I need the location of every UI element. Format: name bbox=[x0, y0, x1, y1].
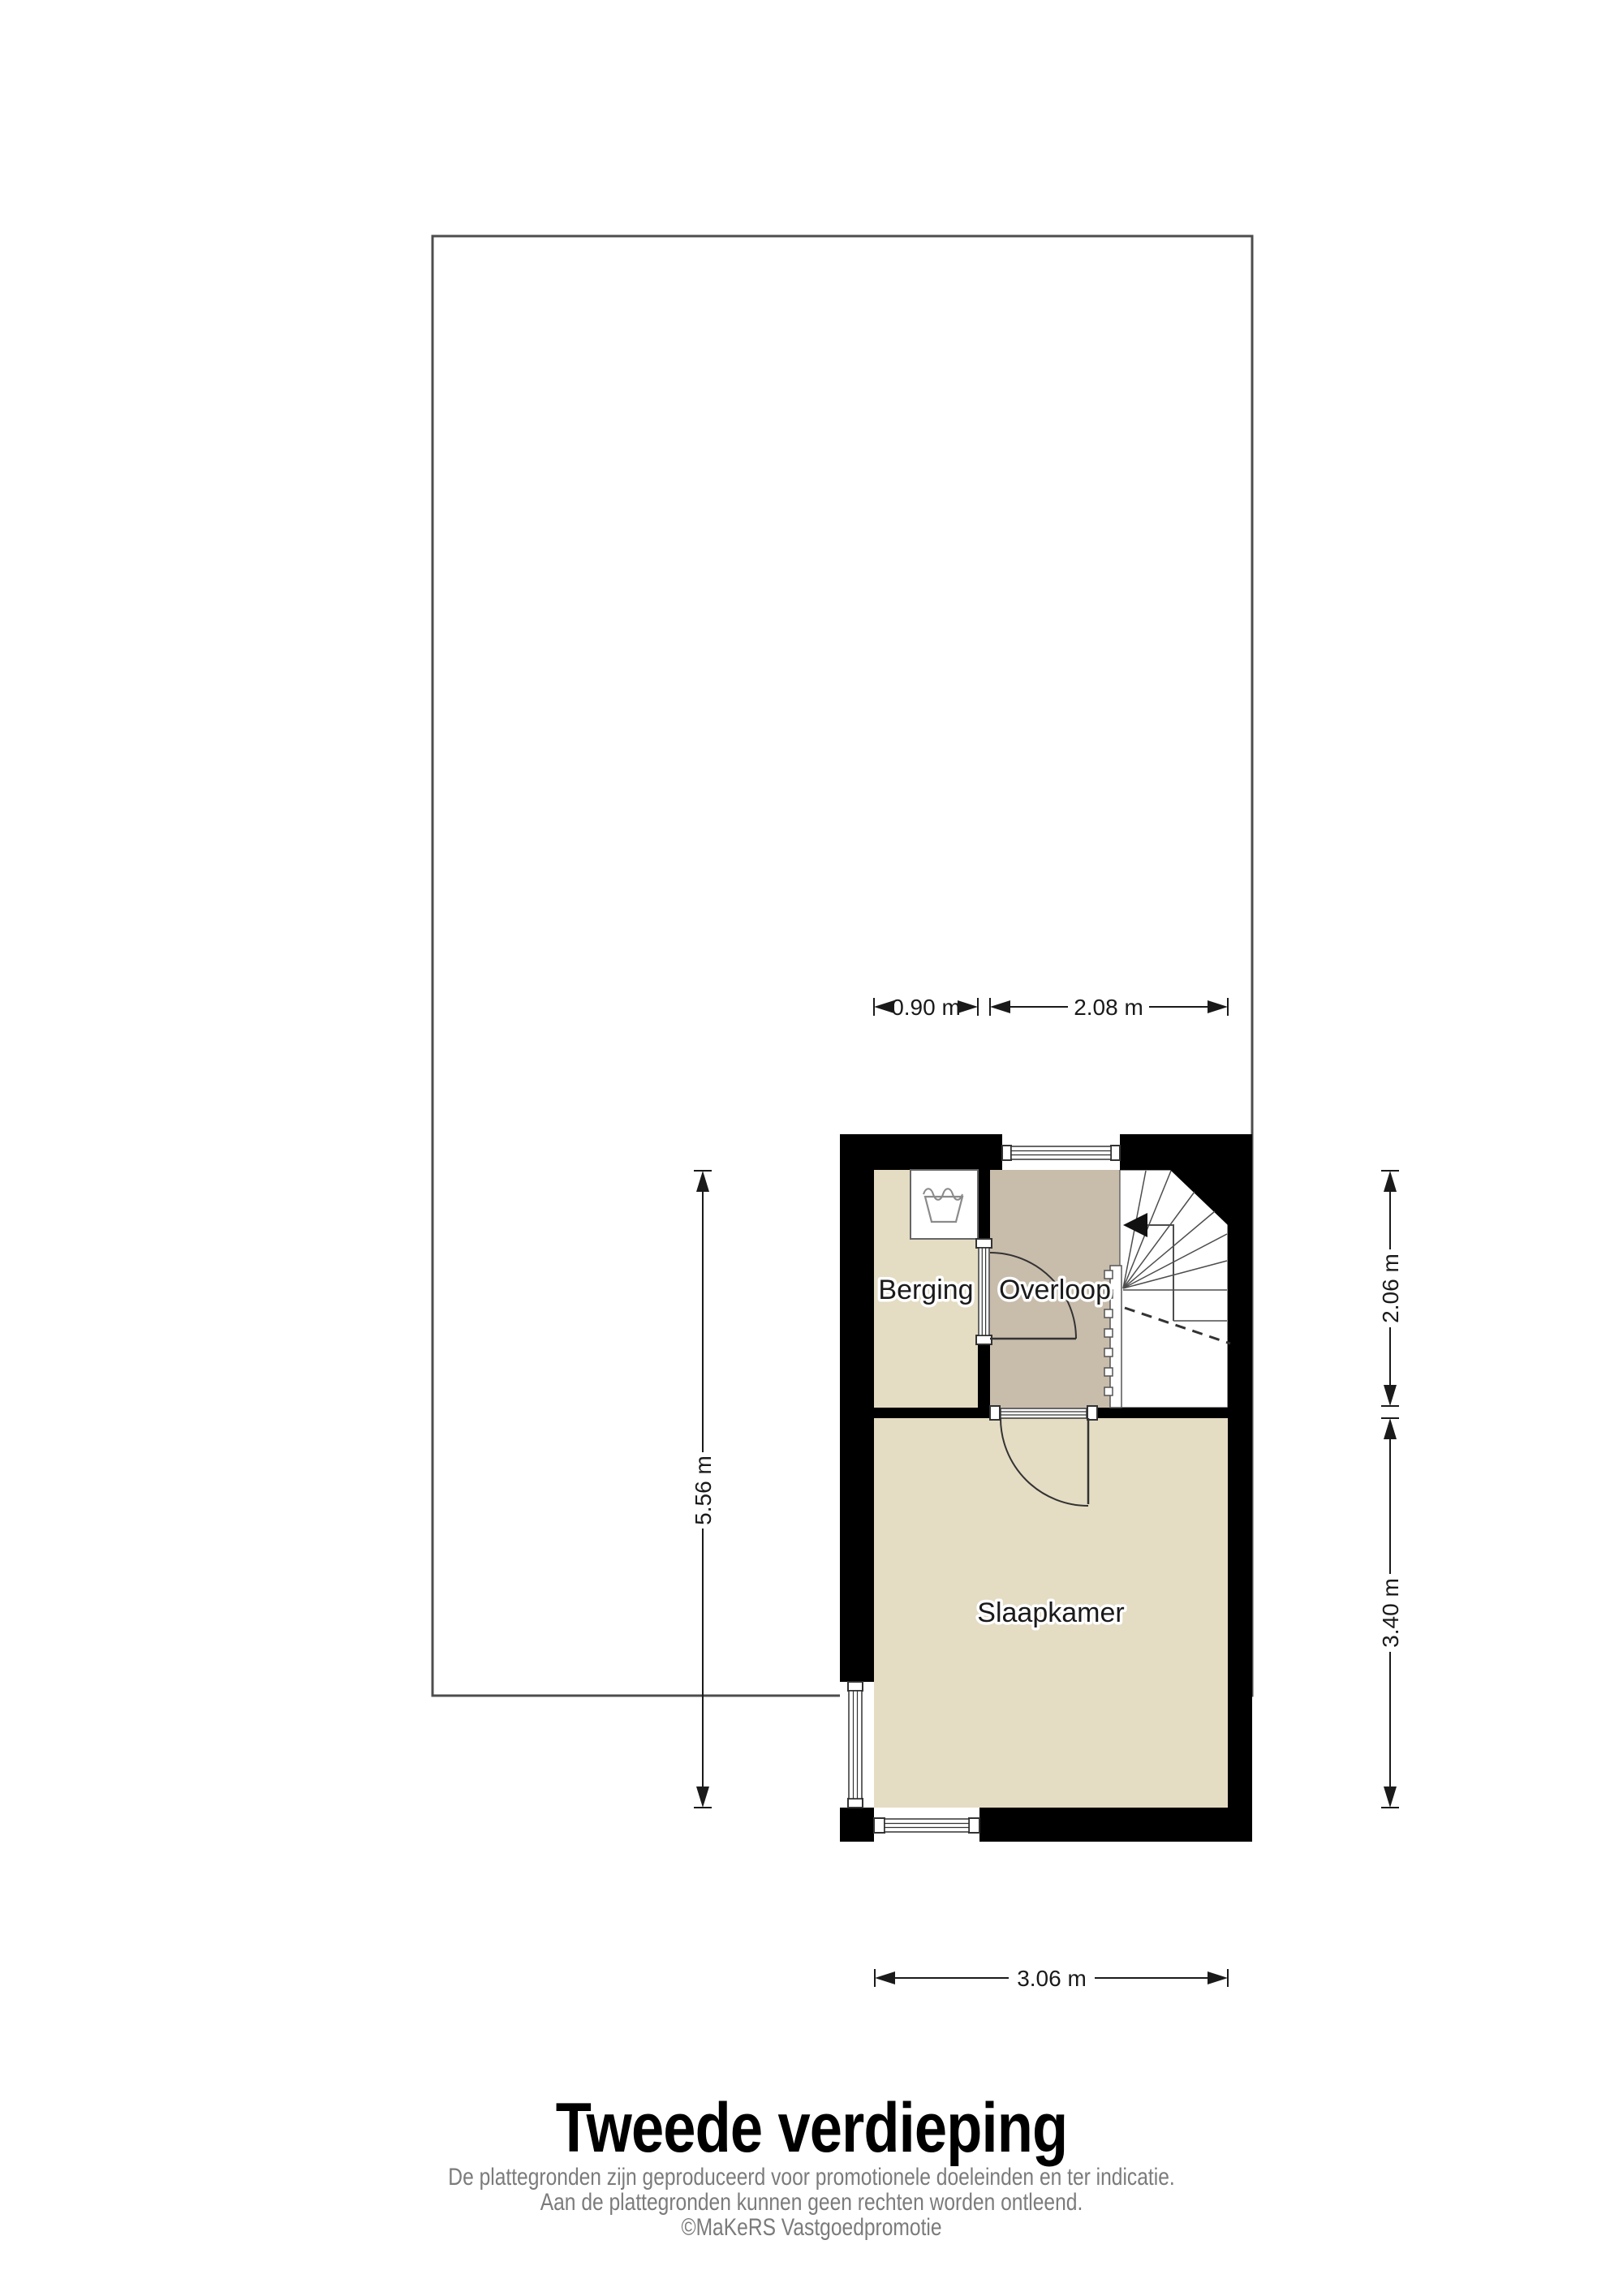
footer-line-2: Aan de plattegronden kunnen geen rechten… bbox=[540, 2188, 1083, 2216]
window-top bbox=[1002, 1134, 1120, 1170]
wall-middle-right bbox=[1097, 1408, 1252, 1418]
room-label-overloop: Overloop bbox=[999, 1275, 1111, 1305]
room-label-slaapkamer: Slaapkamer bbox=[977, 1597, 1124, 1628]
dimension-label: 0.90 m bbox=[891, 995, 961, 1020]
wall-right bbox=[1228, 1134, 1252, 1842]
footer-line-3: ©MaKeRS Vastgoedpromotie bbox=[681, 2213, 941, 2241]
wall-bottom bbox=[979, 1808, 1252, 1842]
wall-divider-upper bbox=[978, 1170, 990, 1239]
floor-plan: Berging Overloop Slaapkamer bbox=[840, 1134, 1252, 1842]
wall-left bbox=[840, 1134, 874, 1682]
dimension-label: 2.08 m bbox=[1074, 995, 1143, 1020]
window-bottom bbox=[874, 1808, 979, 1842]
dimension-slaapkamer-height: 3.40 m bbox=[1378, 1418, 1403, 1808]
room-label-berging: Berging bbox=[878, 1275, 973, 1305]
wall-bottom-left-block bbox=[840, 1808, 874, 1842]
page-title: Tweede verdieping bbox=[556, 2088, 1068, 2166]
dimension-overloop-height: 2.06 m bbox=[1378, 1171, 1403, 1406]
wall-middle-left bbox=[874, 1408, 990, 1418]
dimension-label: 2.06 m bbox=[1378, 1253, 1403, 1323]
dimension-slaapkamer-width: 3.06 m bbox=[875, 1966, 1228, 1991]
footer-line-1: De plattegronden zijn geproduceerd voor … bbox=[448, 2163, 1174, 2191]
washbasin-niche bbox=[911, 1170, 978, 1239]
dimension-label: 3.40 m bbox=[1378, 1578, 1403, 1648]
dimension-label: 5.56 m bbox=[691, 1455, 716, 1525]
dimension-label: 3.06 m bbox=[1017, 1966, 1087, 1991]
window-left bbox=[840, 1682, 874, 1808]
wall-divider-lower bbox=[978, 1344, 990, 1408]
